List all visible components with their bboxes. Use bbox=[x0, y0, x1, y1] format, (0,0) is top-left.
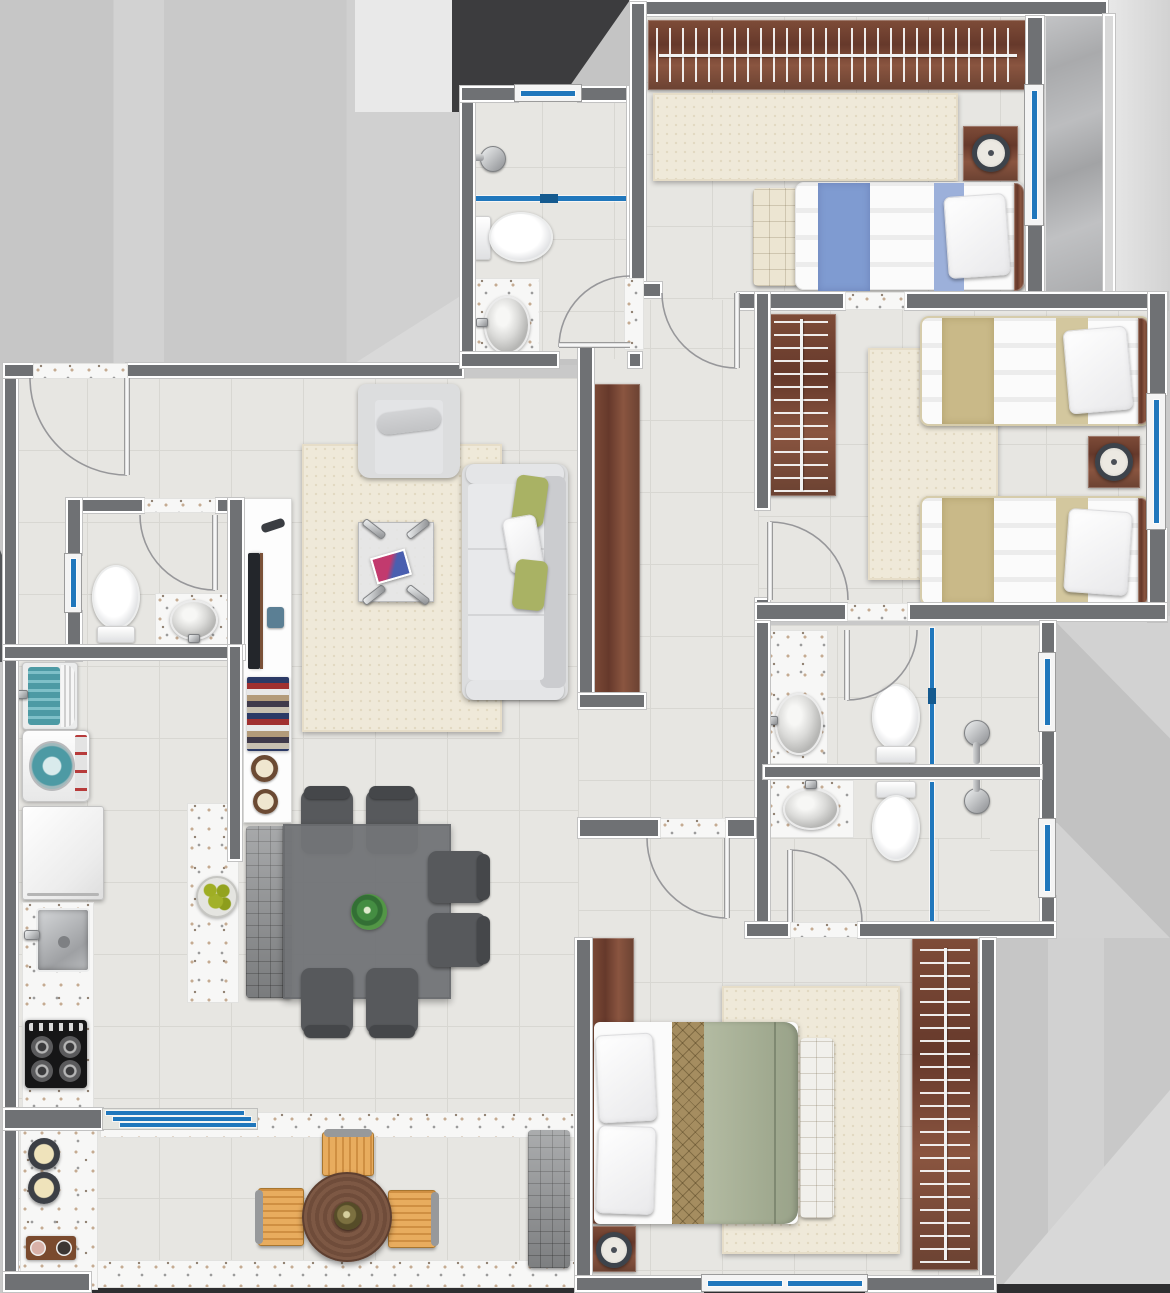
wall-baths-right-b bbox=[1040, 730, 1056, 822]
wall-hall-left bbox=[578, 345, 594, 705]
clock-master bbox=[596, 1232, 632, 1268]
wall-bedroom2-right-upper bbox=[1148, 292, 1167, 395]
wardrobe-bedroom1 bbox=[648, 20, 1028, 90]
clock-bedroom1 bbox=[972, 134, 1010, 172]
magazine bbox=[370, 549, 412, 585]
pillow-master-1 bbox=[595, 1033, 658, 1124]
kitchen-sink bbox=[36, 908, 90, 972]
wall-baths-right-a bbox=[1040, 621, 1056, 654]
sink-bathroom2 bbox=[783, 788, 839, 830]
balcony-chair-right bbox=[388, 1190, 436, 1248]
wall-master-bottom-b bbox=[866, 1276, 996, 1292]
window-glass-right bbox=[788, 1281, 862, 1286]
wall-living-top-b bbox=[126, 363, 464, 378]
window-socialbath bbox=[514, 84, 582, 102]
bed-runner-blue bbox=[818, 183, 870, 291]
table-bracket-nw bbox=[361, 518, 386, 540]
sofa-cushion-green-2 bbox=[511, 558, 548, 611]
tv-frame-wood bbox=[260, 553, 263, 669]
wall-corridor-b bbox=[726, 818, 756, 838]
rug-bedroom1 bbox=[653, 93, 958, 181]
stove-knobs bbox=[29, 1023, 83, 1031]
window-powder bbox=[64, 553, 82, 613]
serving-tray bbox=[26, 1236, 76, 1260]
wall-baths-right-c bbox=[1040, 896, 1056, 924]
pillow-twin2 bbox=[1063, 508, 1133, 596]
foot-bench-bedroom1 bbox=[753, 188, 799, 286]
window-bathroom2 bbox=[1038, 818, 1056, 898]
tv-console bbox=[243, 498, 292, 823]
toilet-bowl-social bbox=[489, 212, 553, 262]
table-bracket-ne bbox=[405, 518, 430, 540]
wall-hall-left-stub bbox=[578, 693, 646, 709]
single-bed-blue bbox=[795, 182, 1025, 290]
wall-bedroom1-left bbox=[630, 2, 646, 298]
outside-light-patch bbox=[355, 0, 453, 112]
sink-drain bbox=[58, 936, 70, 948]
wall-south-a bbox=[745, 922, 790, 938]
threshold-entry bbox=[33, 363, 128, 379]
slider-pane-2 bbox=[113, 1117, 251, 1121]
wall-south-b bbox=[858, 922, 1056, 938]
dining-chair-5 bbox=[301, 968, 353, 1034]
refrigerator bbox=[22, 806, 104, 900]
threshold-bedroom2-bath1 bbox=[847, 603, 908, 621]
armchair bbox=[358, 384, 460, 478]
tray-bowl-dark bbox=[56, 1240, 72, 1256]
pillow-master-2 bbox=[595, 1125, 656, 1215]
toilet-bowl-bathroom2 bbox=[872, 795, 920, 861]
bed-runner-tan bbox=[942, 498, 994, 604]
laundry-tub-board bbox=[61, 665, 75, 727]
wall-living-top-a bbox=[3, 363, 35, 378]
double-bed bbox=[594, 1022, 798, 1224]
washer-drum bbox=[29, 741, 75, 791]
plant-centerpiece bbox=[351, 894, 387, 930]
wall-bedroom2-bottom-a bbox=[755, 603, 847, 621]
washing-machine bbox=[22, 730, 90, 802]
wall-powder-right bbox=[228, 498, 244, 660]
threshold-bath2 bbox=[790, 922, 858, 938]
faucet-social bbox=[476, 318, 488, 327]
balcony-lounger bbox=[528, 1130, 570, 1268]
wall-socialbath-top-a bbox=[460, 86, 518, 102]
tray-bowl-pink bbox=[30, 1240, 46, 1256]
hall-wood-panel bbox=[592, 384, 640, 702]
twin-bed-1 bbox=[920, 316, 1150, 426]
burner-4 bbox=[59, 1060, 81, 1082]
shower-glass-handle-social bbox=[540, 194, 558, 203]
fruit-bowl bbox=[196, 876, 238, 918]
wall-bedroom2-bottom-b bbox=[908, 603, 1167, 621]
balcony-round-table bbox=[302, 1172, 392, 1262]
wall-bedroom1-top bbox=[630, 0, 1108, 16]
laundry-tub-basin bbox=[28, 667, 60, 725]
toilet-tank-bathroom1 bbox=[876, 746, 916, 763]
toilet-bowl-bathroom1 bbox=[872, 684, 920, 750]
remote-control bbox=[260, 518, 286, 534]
threshold-hall-living bbox=[624, 278, 644, 350]
wardrobe-master bbox=[912, 938, 978, 1270]
decor-bowl-1 bbox=[251, 755, 278, 782]
wall-balcony-corner bbox=[3, 1272, 91, 1292]
shower-glass-bathroom2 bbox=[930, 782, 934, 922]
wall-master-bottom-a bbox=[575, 1276, 703, 1292]
gas-stove bbox=[25, 1020, 87, 1088]
magazine-stack bbox=[247, 677, 289, 751]
threshold-bedroom1-bedroom2 bbox=[845, 292, 905, 310]
balcony-bowl-2 bbox=[28, 1172, 60, 1204]
window-glass bbox=[1154, 400, 1159, 523]
balcony-walkway-bottom bbox=[15, 1260, 577, 1288]
dining-chair-3 bbox=[428, 851, 486, 903]
tv bbox=[248, 553, 260, 669]
kitchen-faucet bbox=[24, 930, 40, 940]
shower-arm-bathroom1 bbox=[973, 742, 980, 764]
shower-glass-handle-bathroom1 bbox=[928, 688, 936, 704]
headboard-bedroom1 bbox=[1014, 183, 1024, 291]
wall-bedroom1-right-lower bbox=[1026, 224, 1044, 296]
foot-bench-master bbox=[800, 1038, 834, 1218]
twin-bed-2 bbox=[920, 496, 1150, 606]
wall-master-left bbox=[575, 938, 592, 1290]
speaker bbox=[267, 607, 284, 628]
threshold-powder bbox=[144, 498, 216, 513]
pillow-twin1 bbox=[1062, 325, 1133, 414]
balcony-chair-left bbox=[258, 1188, 304, 1246]
sink-bathroom1 bbox=[775, 693, 823, 755]
wall-bedroom2-left-upper bbox=[755, 292, 770, 510]
bed-runner-master bbox=[672, 1022, 706, 1224]
wall-socialbath-left bbox=[460, 86, 475, 368]
dining-chair-4 bbox=[428, 913, 486, 967]
sink-social bbox=[484, 296, 530, 354]
coffee-table bbox=[358, 522, 434, 602]
window-glass bbox=[1032, 91, 1037, 219]
wall-corridor-a bbox=[578, 818, 660, 838]
wall-marble-edge bbox=[1103, 14, 1115, 298]
wall-socialbath-bottom-a bbox=[460, 352, 559, 368]
wall-master-right bbox=[980, 938, 996, 1290]
wall-kitchen-bottom bbox=[3, 1108, 103, 1130]
burner-3 bbox=[31, 1060, 53, 1082]
window-bedroom1 bbox=[1024, 84, 1044, 226]
window-master bbox=[701, 1274, 868, 1292]
shower-head-social bbox=[480, 146, 506, 172]
wall-bedroom1-bedroom2-b bbox=[905, 292, 1168, 310]
wall-bedroom1-bedroom2-a bbox=[737, 292, 845, 310]
toilet-bowl-powder bbox=[92, 565, 140, 629]
wall-kitchen-top bbox=[3, 645, 245, 660]
wall-bath-divider bbox=[763, 765, 1042, 779]
sofa bbox=[462, 464, 568, 700]
floor-plan bbox=[0, 0, 1170, 1293]
laundry-tub bbox=[22, 662, 78, 730]
balcony-sliding-door bbox=[102, 1108, 258, 1130]
wall-kitchen-divider bbox=[228, 645, 242, 861]
decor-bowl-2 bbox=[253, 789, 278, 814]
faucet-powder bbox=[188, 634, 200, 643]
wall-left-outer bbox=[3, 363, 18, 1290]
toilet-tank-powder bbox=[97, 626, 135, 643]
bed-runner-tan bbox=[942, 318, 994, 424]
apples bbox=[200, 880, 234, 914]
window-bathroom1 bbox=[1038, 652, 1056, 732]
window-glass-left bbox=[708, 1281, 782, 1286]
washer-panel bbox=[75, 735, 87, 799]
wall-powder-left-a bbox=[66, 498, 82, 555]
fridge-handle bbox=[27, 893, 99, 896]
marble-panel bbox=[1045, 16, 1105, 296]
table-centerpiece bbox=[334, 1202, 362, 1230]
window-bedroom2 bbox=[1146, 393, 1166, 530]
pillow-bedroom1 bbox=[943, 193, 1011, 279]
balcony-bowl-1 bbox=[28, 1138, 60, 1170]
burner-1 bbox=[31, 1036, 53, 1058]
duvet-fold-line bbox=[774, 1022, 776, 1224]
slider-pane-1 bbox=[106, 1111, 244, 1115]
faucet-bathroom2 bbox=[805, 780, 817, 789]
wardrobe-bedroom2 bbox=[766, 314, 836, 496]
clock-bedroom2 bbox=[1095, 443, 1133, 481]
wall-bedroom1-right-upper bbox=[1026, 16, 1044, 88]
window-glass bbox=[71, 559, 76, 607]
window-glass bbox=[521, 91, 575, 96]
slider-pane-3 bbox=[120, 1123, 256, 1127]
balcony-chair-top bbox=[322, 1132, 374, 1176]
duvet-sage bbox=[704, 1022, 798, 1224]
burner-2 bbox=[59, 1036, 81, 1058]
window-glass bbox=[1045, 825, 1050, 891]
dining-chair-6 bbox=[366, 968, 418, 1034]
window-glass bbox=[1045, 659, 1050, 725]
threshold-master bbox=[660, 818, 726, 838]
wall-socialbath-bottom-b bbox=[628, 352, 642, 368]
